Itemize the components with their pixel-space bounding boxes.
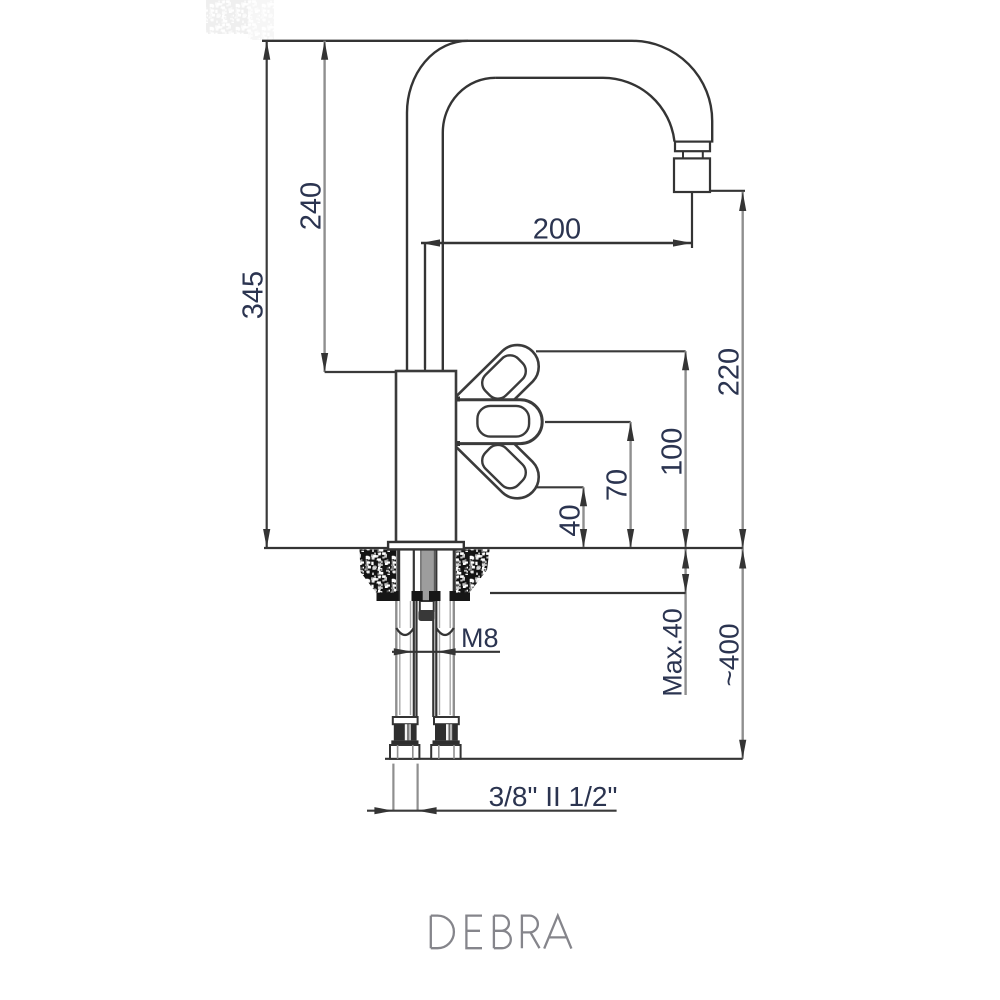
svg-text:100: 100 (656, 428, 688, 476)
svg-text:~400: ~400 (714, 623, 745, 686)
svg-text:Max.40: Max.40 (657, 608, 687, 697)
svg-text:70: 70 (601, 469, 633, 501)
svg-text:200: 200 (533, 214, 581, 246)
svg-text:345: 345 (238, 271, 270, 319)
svg-text:220: 220 (714, 348, 746, 396)
svg-text:40: 40 (554, 504, 586, 536)
svg-text:240: 240 (296, 182, 328, 230)
svg-text:3/8" II 1/2": 3/8" II 1/2" (489, 781, 618, 812)
svg-text:M8: M8 (461, 623, 499, 653)
